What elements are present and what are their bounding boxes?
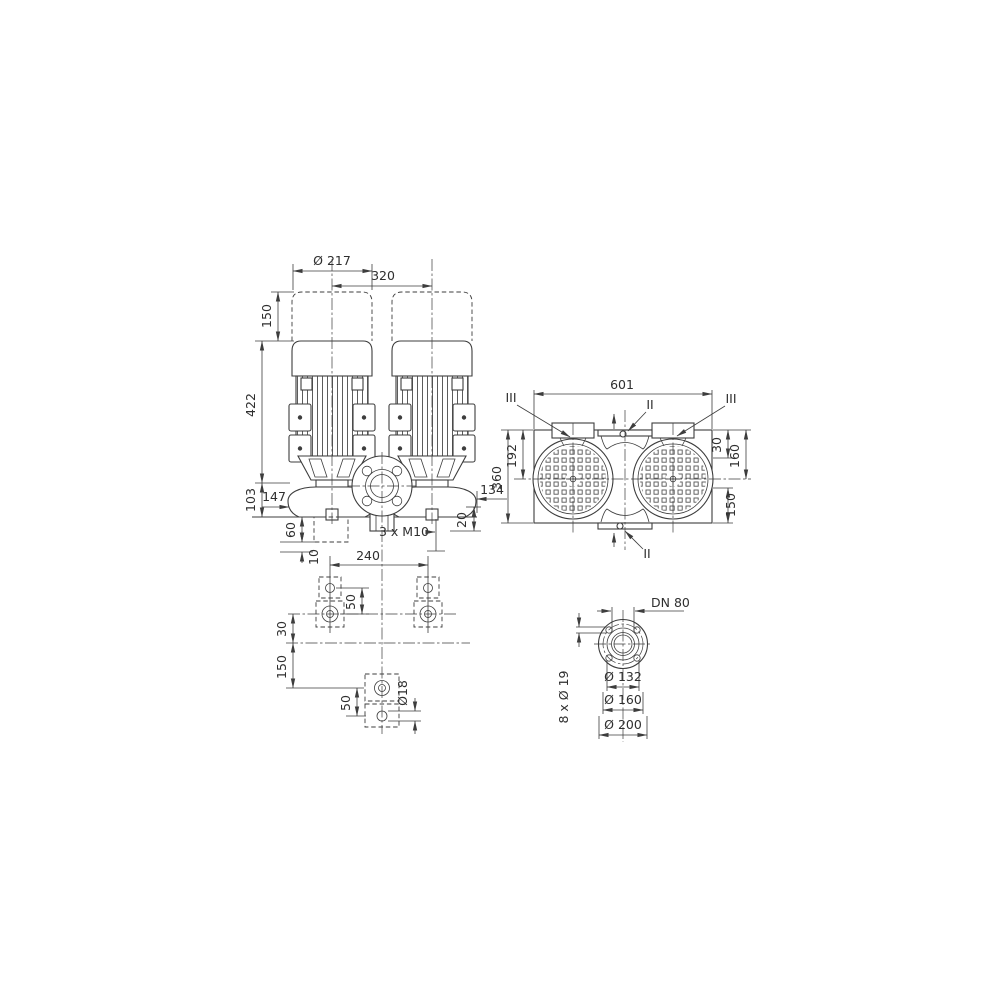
dim-overall-length: 601 [610,377,634,392]
dim-nominal-bore: DN 80 [651,595,690,610]
dim-hole-diameter: Ø18 [395,680,410,706]
section-label-three-left: III [505,390,516,405]
dim-motor-diameter: Ø 217 [313,253,351,268]
drawing-canvas: Ø 217 320 150 422 103 147 60 10 3 x M10 [0,0,1000,1000]
dim-bolt-holes: 8 x Ø 19 [556,670,571,723]
plan-view: III III II II 601 360 192 30 160 [489,377,751,561]
dim-grout-thickness: 10 [306,549,321,565]
dim-foundation-height: 60 [283,522,298,538]
foundation-block [314,517,348,542]
dim-foot-offset: 147 [262,489,286,504]
dim-axis-offset: 30 [274,621,289,637]
dim-foot-thickness: 20 [454,512,469,528]
section-label-two-top: II [646,397,653,412]
dim-hole-pitch-top: 50 [343,594,358,610]
dim-raised-face: Ø 132 [604,669,642,684]
dim-overall-width: 360 [489,466,504,490]
section-label-two-bottom: II [643,546,650,561]
dim-edge-to-center: 160 [727,444,742,468]
dim-bolt-spacing: 240 [356,548,380,563]
section-label-three-right: III [725,391,736,406]
flange-view: DN 80 8 x Ø 19 Ø 132 Ø 160 Ø 200 [556,595,690,742]
technical-drawing-page: Ø 217 320 150 422 103 147 60 10 3 x M10 [0,0,1000,1000]
dim-fixing-holes: 3 x M10 [379,524,429,539]
dim-axis-to-bolt: 150 [274,655,289,679]
dim-bolt-circle: Ø 160 [604,692,642,707]
dim-removal-space: 150 [259,304,274,328]
dim-base-height: 103 [243,488,258,512]
dim-port-spacing: 320 [371,268,395,283]
dim-motor-height: 422 [243,393,258,417]
dim-edge-offset: 30 [709,437,724,453]
dim-hole-pitch-bottom: 50 [338,695,353,711]
dim-outer-diameter: Ø 200 [604,717,642,732]
foundation-dimensions: 50 30 150 50 Ø18 [274,588,421,734]
dim-edge-to-axis: 192 [504,444,519,468]
gauge-port-bottom [617,523,623,529]
foundation-view: 50 30 150 50 Ø18 [274,577,470,734]
dim-center-to-edge: 150 [723,493,738,517]
